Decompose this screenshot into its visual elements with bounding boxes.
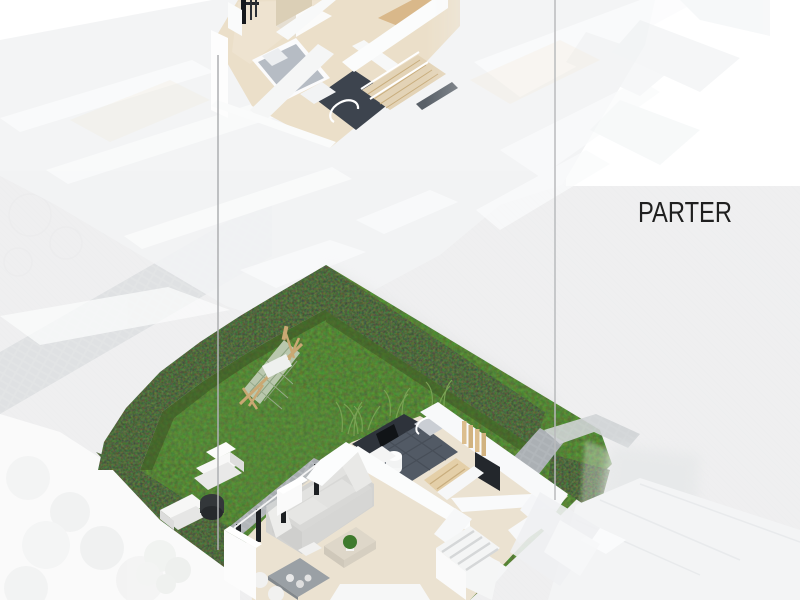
- svg-text:PARTER: PARTER: [638, 197, 732, 229]
